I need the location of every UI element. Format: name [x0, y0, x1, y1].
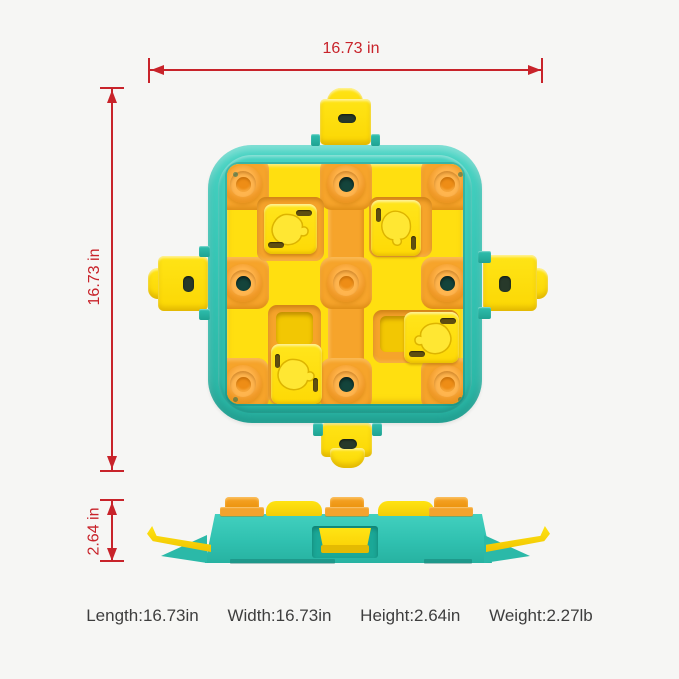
spec-height-label: Height:	[360, 606, 414, 625]
slider-slot	[376, 208, 381, 222]
slider-slot	[296, 210, 312, 216]
puzzle-slider-bottom-right	[404, 312, 459, 363]
spec-row: Length:16.73in Width:16.73in Height:2.64…	[0, 606, 679, 626]
well-ring	[333, 171, 359, 197]
well-ring	[434, 371, 460, 397]
width-dimension-tick-left	[148, 58, 150, 83]
foot	[230, 559, 335, 564]
arrow-down-icon	[107, 548, 117, 561]
width-dimension-tick-right	[541, 58, 543, 83]
foot	[424, 559, 472, 564]
arrow-left-icon	[151, 65, 164, 75]
arrow-up-icon	[107, 90, 117, 103]
puzzle-board	[227, 164, 463, 404]
depth-dimension-label: 2.64 in	[85, 497, 104, 567]
screw-dot	[458, 397, 463, 402]
arrow-down-icon	[107, 456, 117, 469]
puzzle-slider-bottom-left	[271, 344, 322, 404]
feeding-well	[327, 165, 365, 203]
puzzle-slider-top-right	[371, 200, 421, 256]
spec-width: Width:16.73in	[227, 606, 331, 626]
height-dimension-tick-bottom	[100, 470, 124, 472]
slider-slot	[411, 236, 416, 250]
slider-profile	[266, 501, 322, 516]
screw-dot	[458, 172, 463, 177]
slider-profile	[378, 501, 434, 516]
spec-height: Height:2.64in	[360, 606, 460, 626]
knob-flange	[429, 507, 473, 516]
spec-length-value: 16.73in	[143, 606, 199, 625]
spec-width-value: 16.73in	[276, 606, 332, 625]
spec-length-label: Length:	[86, 606, 143, 625]
well-center	[339, 177, 354, 192]
hinge	[371, 134, 380, 146]
arrow-right-icon	[528, 65, 541, 75]
puzzle-slider-top-left	[264, 204, 317, 254]
hinge	[372, 423, 382, 436]
hinge	[478, 251, 491, 263]
screw-dot	[233, 397, 238, 402]
spec-width-label: Width:	[227, 606, 275, 625]
well-ring	[333, 371, 359, 397]
width-dimension-line	[149, 69, 543, 71]
well-ring	[333, 270, 359, 296]
hinge	[313, 423, 323, 436]
screw-dot	[233, 172, 238, 177]
well-ring	[230, 270, 256, 296]
well-center	[236, 276, 251, 291]
bottom-tab-slot	[339, 439, 357, 449]
bottom-clip-tab-dome	[330, 448, 365, 468]
top-tab-slot	[338, 114, 356, 123]
left-tab-slot	[183, 276, 194, 292]
depth-dimension-tick-top	[100, 499, 124, 501]
hinge	[478, 307, 491, 319]
well-ring	[434, 270, 460, 296]
knob-flange	[325, 507, 369, 516]
hinge	[199, 246, 210, 257]
latch-bar	[321, 545, 369, 553]
spec-height-value: 2.64in	[414, 606, 460, 625]
well-ring	[230, 371, 256, 397]
width-dimension-label: 16.73 in	[296, 39, 406, 59]
well-ring	[434, 171, 460, 197]
slider-slot	[313, 378, 318, 392]
height-dimension-line	[111, 88, 113, 472]
hinge	[311, 134, 320, 146]
slider-slot	[275, 354, 280, 368]
slider-slot	[440, 318, 456, 324]
well-center	[236, 377, 251, 392]
side-clip-right	[486, 526, 550, 552]
right-tab-slot	[499, 276, 511, 292]
height-dimension-tick-top	[100, 87, 124, 89]
feeding-well	[327, 264, 365, 302]
track-recess	[276, 312, 313, 345]
spec-weight-label: Weight:	[489, 606, 546, 625]
well-center	[440, 276, 455, 291]
feeding-well	[428, 165, 463, 203]
feeding-well	[428, 264, 463, 302]
well-center	[440, 177, 455, 192]
drumstick-icon	[275, 355, 317, 393]
well-center	[339, 276, 354, 291]
height-dimension-label: 16.73 in	[85, 237, 105, 317]
hinge	[199, 309, 210, 320]
well-center	[236, 177, 251, 192]
spec-length: Length:16.73in	[86, 606, 199, 626]
arrow-up-icon	[107, 502, 117, 515]
spec-weight: Weight:2.27lb	[489, 606, 593, 626]
feeding-well	[327, 365, 365, 403]
spec-weight-value: 2.27lb	[546, 606, 592, 625]
product-dimension-diagram: 16.73 in 16.73 in 2.64 in	[0, 0, 679, 679]
well-center	[440, 377, 455, 392]
well-center	[339, 377, 354, 392]
slider-slot	[268, 242, 284, 248]
knob-flange	[220, 507, 264, 516]
slider-slot	[409, 351, 425, 357]
